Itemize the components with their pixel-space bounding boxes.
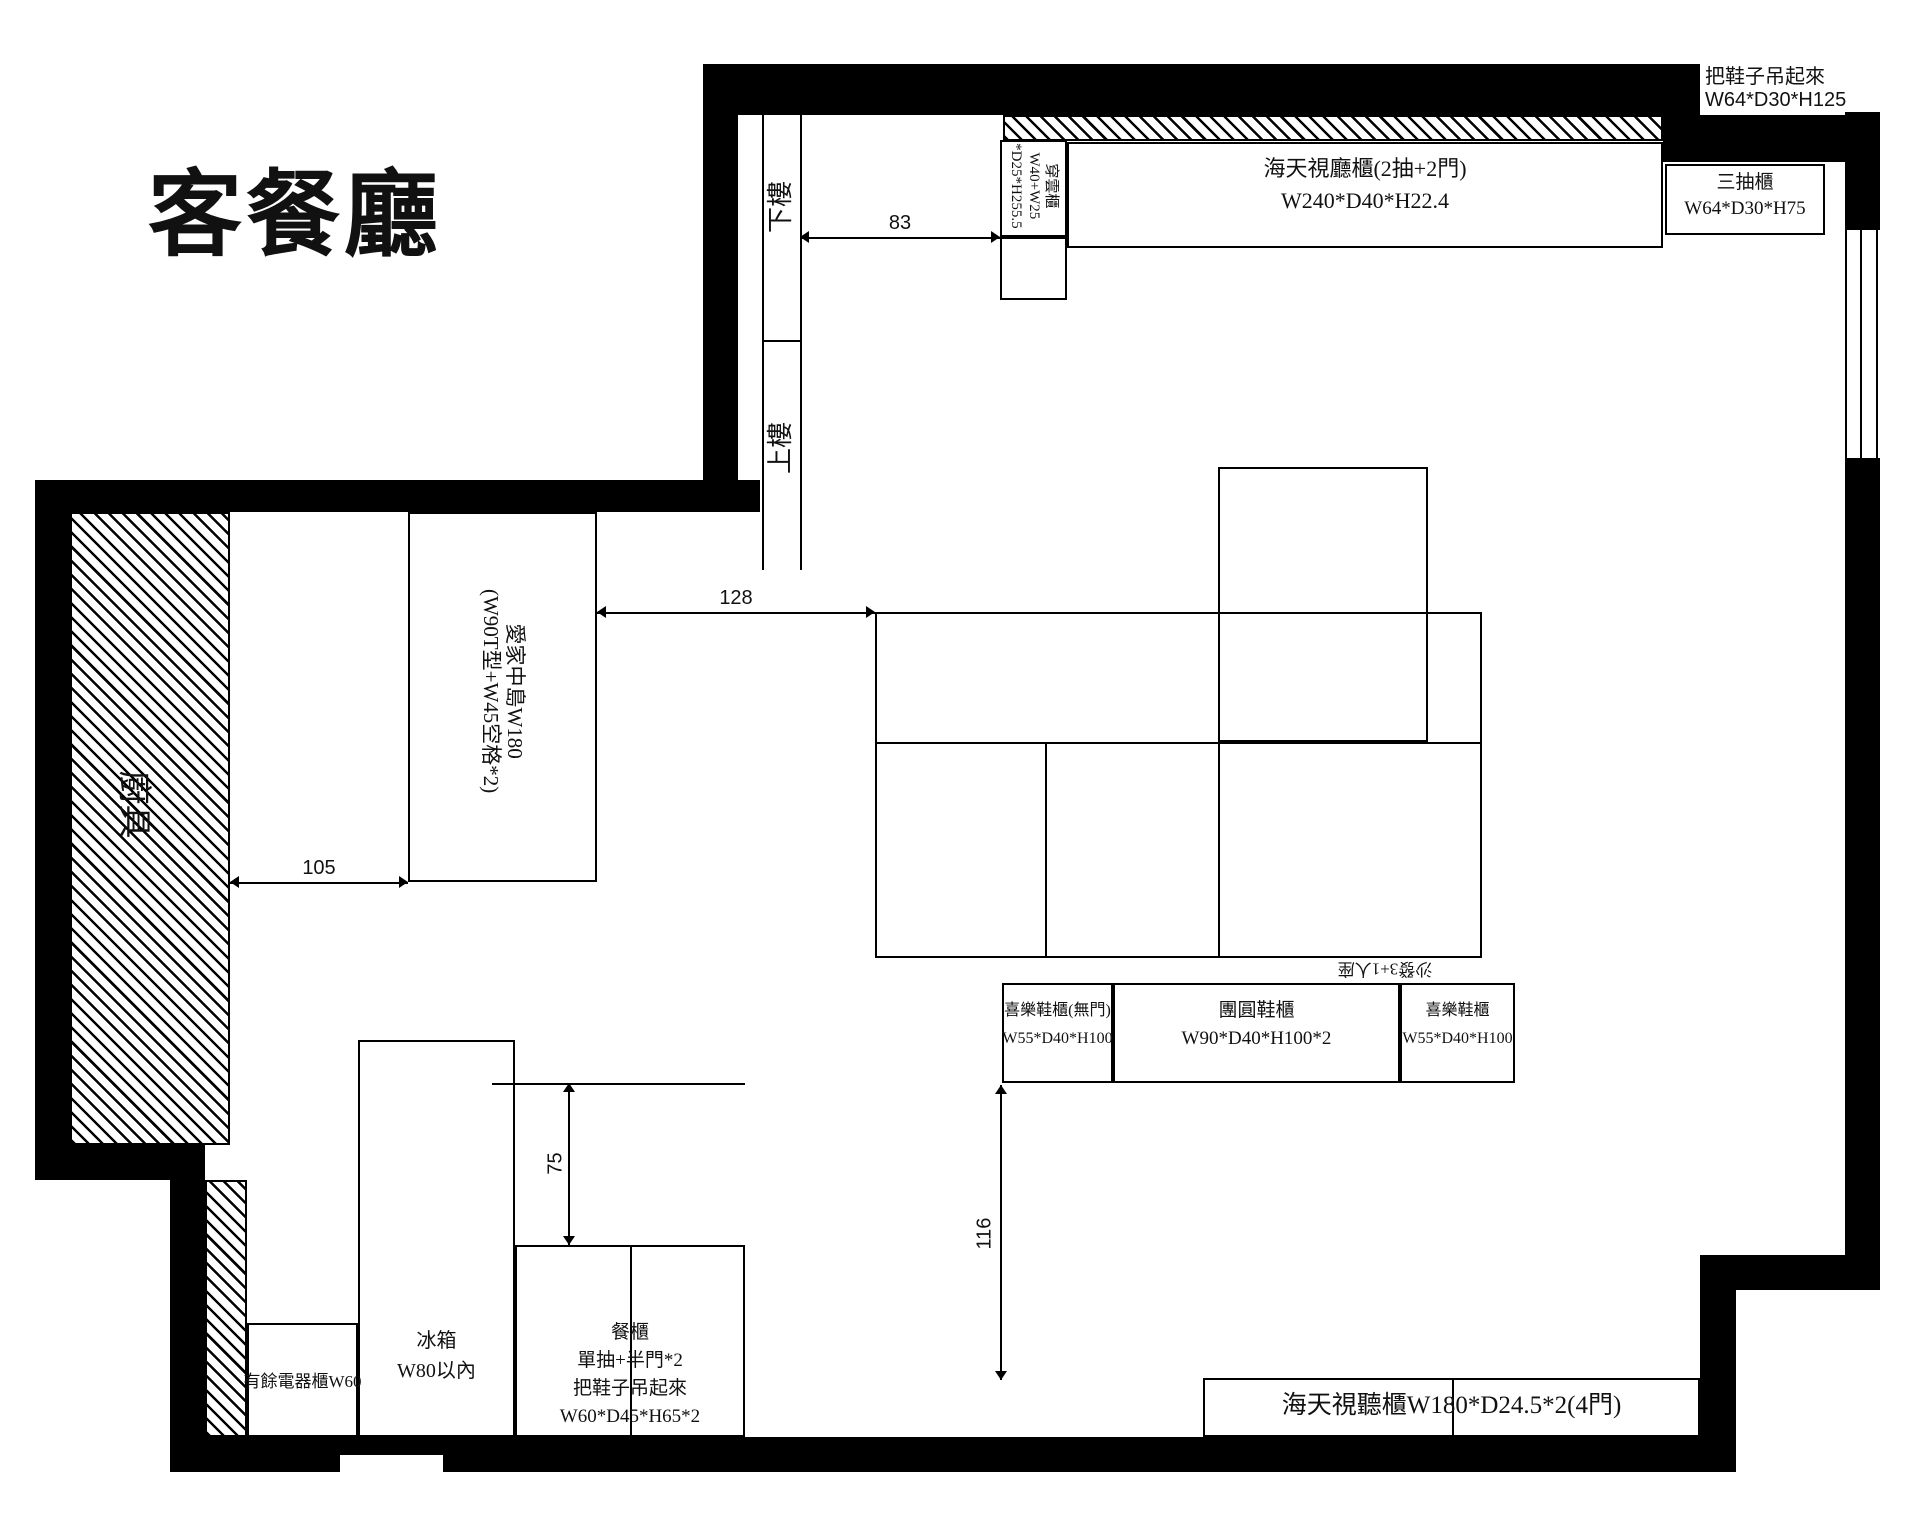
shoe-cabinet-center-label-1: 團圓鞋櫃 xyxy=(1113,1000,1400,1022)
dim-128-arrow-left xyxy=(597,606,606,618)
fridge-label-2: W80以內 xyxy=(358,1360,515,1383)
kitchen-fixtures-label: 廚具 xyxy=(113,765,152,845)
wall-entry-left xyxy=(703,64,738,512)
dim-83-arrow-right xyxy=(991,231,1000,243)
dim-116-line xyxy=(1000,1085,1002,1380)
dim-128-label: 128 xyxy=(686,587,786,610)
dim-116-arrow-bottom xyxy=(995,1371,1007,1380)
kitchen-counter-hatch-lower xyxy=(205,1180,247,1437)
island-label: 愛家中島W180 (W90T型+W45空格*2) xyxy=(479,506,527,876)
sideboard-label-3: 把鞋子吊起來 xyxy=(515,1378,745,1400)
dim-105-label: 105 xyxy=(269,857,369,880)
fridge-label-1: 冰箱 xyxy=(358,1330,515,1353)
page-title: 客餐廳 xyxy=(140,162,450,270)
shoe-cabinet-left-label-1: 喜樂鞋櫃(無門) xyxy=(1000,1002,1115,1020)
dim-83-arrow-left xyxy=(800,231,809,243)
shoe-cabinet-left-label-2: W55*D40*H100 xyxy=(1000,1030,1115,1048)
sofa-seat-line xyxy=(875,742,1482,744)
dim-128-line xyxy=(597,612,875,614)
stairs-left-line xyxy=(762,115,764,570)
sideboard-label-1: 餐櫃 xyxy=(515,1322,745,1344)
dim-105-line xyxy=(230,882,408,884)
dim-116-label: 116 xyxy=(974,1194,997,1274)
dim-116-arrow-top xyxy=(995,1085,1007,1094)
dim-128-arrow-right xyxy=(866,606,875,618)
dim-83-line xyxy=(800,237,1000,239)
stairs-divider xyxy=(762,340,800,342)
stairs-down-label: 下樓 xyxy=(766,167,796,247)
dim-75-arrow-top xyxy=(563,1083,575,1092)
dim-105-arrow-left xyxy=(230,876,239,888)
av-cabinet-top-label-1: 海天視廳櫃(2抽+2門) xyxy=(1067,156,1663,181)
sideboard-label-4: W60*D45*H65*2 xyxy=(515,1406,745,1428)
right-window xyxy=(1845,230,1880,458)
wall-top-right-step xyxy=(1663,115,1863,162)
tall-cabinet-sub-box xyxy=(1000,237,1067,300)
dim-75-line xyxy=(568,1083,570,1245)
hang-shoes-note: 把鞋子吊起來 W64*D30*H125 xyxy=(1705,66,1905,112)
sofa-divider-1 xyxy=(1045,742,1047,958)
av-cabinet-bottom-label: 海天視聽櫃W180*D24.5*2(4門) xyxy=(1203,1392,1700,1421)
sideboard-label-2: 單抽+半門*2 xyxy=(515,1350,745,1372)
wall-top xyxy=(703,64,1700,115)
av-cabinet-top-label-2: W240*D40*H22.4 xyxy=(1067,188,1663,213)
three-drawer-label-1: 三抽櫃 xyxy=(1665,172,1825,194)
right-window-line xyxy=(1860,230,1862,458)
wall-leftroom-top xyxy=(35,480,760,512)
dim-75-arrow-bottom xyxy=(563,1236,575,1245)
dim-83-label: 83 xyxy=(850,212,950,235)
overhead-cabinet-hatch xyxy=(1003,115,1663,141)
floor-plan: 客餐廳 下樓 上樓 穿雲櫃 W40+W25 *D25*H255.5 海天視廳櫃(… xyxy=(0,0,1906,1525)
dim-75-label: 75 xyxy=(545,1124,568,1204)
wall-bottomleft-step-v xyxy=(170,1145,205,1472)
shoe-cabinet-right-label-2: W55*D40*H100 xyxy=(1398,1030,1517,1048)
sofa-divider-2 xyxy=(1218,742,1220,958)
dim-105-arrow-right xyxy=(399,876,408,888)
counter-ref-line xyxy=(492,1083,745,1085)
shoe-cabinet-right-label-1: 喜樂鞋櫃 xyxy=(1398,1002,1517,1020)
wall-left xyxy=(35,480,70,1180)
stairs-up-label: 上樓 xyxy=(766,408,796,488)
shoe-cabinet-center-label-2: W90*D40*H100*2 xyxy=(1113,1028,1400,1050)
sofa-label: 沙發3+1人座 xyxy=(1300,959,1470,979)
three-drawer-label-2: W64*D30*H75 xyxy=(1665,198,1825,220)
tall-cabinet-label: 穿雲櫃 W40+W25 *D25*H255.5 xyxy=(1007,128,1059,244)
appliance-cabinet-label: 有餘電器櫃W60 xyxy=(240,1372,365,1392)
bottom-wall-gap xyxy=(340,1455,443,1472)
right-window-line xyxy=(1845,230,1847,458)
stairs-right-line xyxy=(800,115,802,570)
sofa-chaise-box xyxy=(1218,467,1428,742)
right-window-line xyxy=(1876,230,1878,458)
